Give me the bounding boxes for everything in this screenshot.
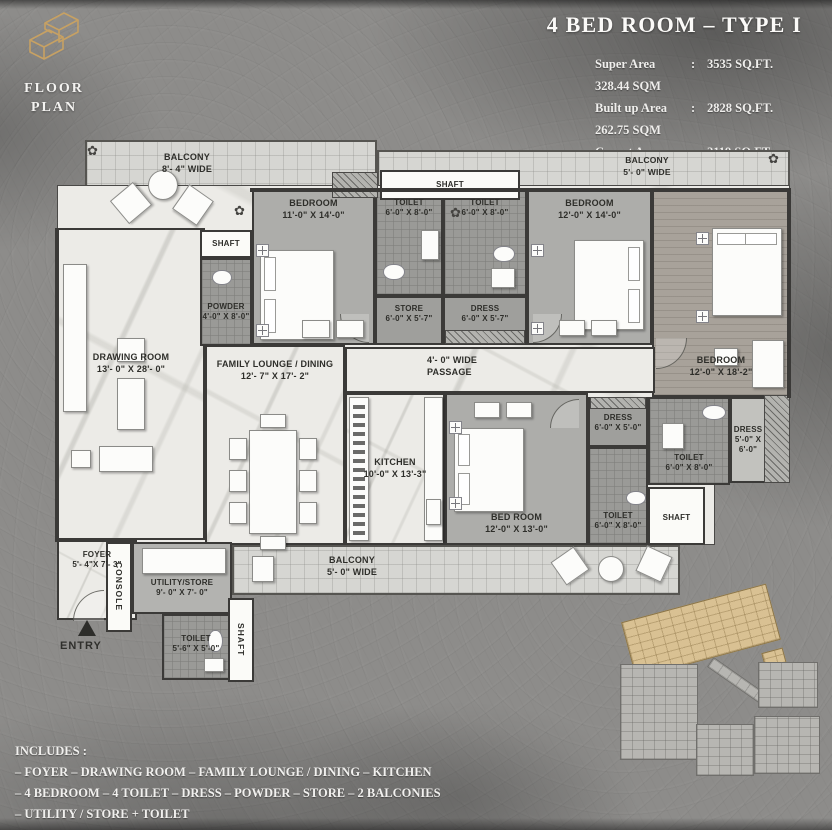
bed-symbol [454,428,524,512]
chair-symbol [336,320,364,338]
drawing-room: DRAWING ROOM 13'- 0" X 28'- 0" [57,228,205,540]
brand-block: FLOOR PLAN [12,8,96,117]
includes-line: – UTILITY / STORE + TOILET [15,804,441,825]
bedroom-1: BEDROOM 11'-0" X 14'-0" [252,190,375,345]
bedroom-2: BEDROOM 12'-0" X 14'-0" [527,190,652,345]
entry-arrow-icon [78,620,96,636]
fan-icon [449,497,462,510]
room-label: BED ROOM 12'-0" X 13'-0" [447,512,586,535]
wall-segment [55,228,58,542]
room-label: TOILET 6'-0" X 8'-0" [445,198,525,218]
hatch-strip [590,397,646,409]
bed-symbol [574,240,644,330]
includes-block: INCLUDES : – FOYER – DRAWING ROOM – FAMI… [15,741,441,825]
area-sqft: 3535 SQ.FT. [707,53,801,75]
room-label: 4'- 0" WIDE PASSAGE [427,355,505,378]
chair-symbol [474,402,500,418]
sink-symbol [426,499,441,525]
hatch-strip [445,330,525,344]
toilet-5: TOILET 5'-6" X 5'-0" [162,614,230,680]
includes-heading: INCLUDES : [15,741,441,762]
stool-symbol [71,450,91,468]
door-arc [550,399,579,428]
room-label: BEDROOM 12'-0" X 18'-2" [654,355,788,378]
fan-icon [531,244,544,257]
wc-icon [626,491,646,505]
room-label: TOILET 6'-0" X 8'-0" [590,511,646,531]
colon: : [691,97,707,119]
table-symbol [117,378,145,430]
chair-symbol [299,470,317,492]
dining-table-symbol [249,430,297,534]
wc-icon [383,264,405,280]
chair-symbol [299,438,317,460]
area-label: Super Area [595,53,691,75]
rosette-icon: ✿ [234,204,245,217]
wc-icon [212,270,232,285]
sofa-symbol [63,264,87,412]
room-label: UTILITY/STORE 9'- 0" X 7'- 0" [134,578,230,598]
room-label: BEDROOM 12'-0" X 14'-0" [529,198,650,221]
includes-line: – 4 BEDROOM – 4 TOILET – DRESS – POWDER … [15,783,441,804]
area-label: Built up Area [595,97,691,119]
sink-symbol [491,268,515,288]
bedroom-3: BEDROOM 12'-0" X 18'-2" [652,188,790,397]
logo-icon [21,8,87,70]
wc-icon [493,246,515,262]
area-sqm: 262.75 SQM [595,119,661,141]
sink-symbol [662,423,684,449]
room-label: STORE 6'-0" X 5'-7" [377,304,441,324]
key-plan-block [758,662,818,708]
sofa-symbol [99,446,153,472]
room-label: TOILET 6'-0" X 8'-0" [650,453,728,473]
powder-room: POWDER 4'-0" X 8'-0" [200,258,252,346]
utility-store: UTILITY/STORE 9'- 0" X 7'- 0" [132,542,232,614]
dress-3: DRESS 5'-0" X 6'-0" [730,397,766,483]
kitchen: KITCHEN 10'-0" X 13'-3" [345,393,445,545]
chair-symbol [229,470,247,492]
chair-symbol [302,320,330,338]
chair-symbol [260,536,286,550]
key-plan [612,592,828,788]
room-label: DRESS 5'-0" X 6'-0" [732,425,764,455]
room-label: BALCONY 5'- 0" WIDE [604,155,690,178]
room-label: DRAWING ROOM 13'- 0" X 28'- 0" [59,352,203,375]
toilet-2: TOILET 6'-0" X 8'-0" [443,190,527,296]
fan-icon [531,322,544,335]
chair-symbol [299,502,317,524]
washer-symbol [252,556,274,582]
chair-symbol [551,547,590,586]
chair-symbol [559,320,585,336]
room-label: SHAFT [236,623,246,656]
door-arc [73,590,104,621]
vanity-symbol [421,230,439,260]
area-sqm: 328.44 SQM [595,75,661,97]
sink-symbol [204,658,224,672]
rosette-icon: ✿ [768,152,779,165]
wardrobe-hatch [764,395,790,483]
page-title: 4 BED ROOM – TYPE I [547,12,802,38]
fan-icon [256,244,269,257]
balcony-bottom: BALCONY 5'- 0" WIDE [232,545,680,595]
room-label: SHAFT [650,513,703,523]
toilet-1: TOILET 6'-0" X 8'-0" [375,190,443,296]
wc-icon [702,405,726,420]
utility-bench-symbol [142,548,226,574]
chair-symbol [229,502,247,524]
shaft-top: SHAFT [380,170,520,200]
fan-icon [696,310,709,323]
floor-plan-label: FLOOR PLAN [12,79,96,117]
area-sqft: 2828 SQ.FT. [707,97,801,119]
key-plan-block [696,724,754,776]
passage: 4'- 0" WIDE PASSAGE [345,347,655,393]
room-label: SHAFT [382,180,518,190]
colon: : [691,53,707,75]
room-label: KITCHEN 10'-0" X 13'-3" [347,457,443,480]
fan-icon [696,232,709,245]
chair-symbol [591,320,617,336]
includes-line: – FOYER – DRAWING ROOM – FAMILY LOUNGE /… [15,762,441,783]
toilet-3: TOILET 6'-0" X 8'-0" [648,397,730,485]
area-row: Super Area:3535 SQ.FT.328.44 SQM [595,53,832,97]
store-room: STORE 6'-0" X 5'-7" [375,296,443,345]
chair-symbol [229,438,247,460]
chair-symbol [506,402,532,418]
bed-symbol [712,228,782,316]
key-plan-block [620,664,698,760]
family-lounge-dining: FAMILY LOUNGE / DINING 12'- 7" X 17'- 2" [205,345,345,545]
toilet-4: TOILET 6'-0" X 8'-0" [588,447,648,545]
round-table-symbol [598,556,624,582]
room-label: BALCONY 8'- 4" WIDE [127,152,247,175]
area-row: Built up Area:2828 SQ.FT.262.75 SQM [595,97,832,141]
room-label: BEDROOM 11'-0" X 14'-0" [254,198,373,221]
shaft-right: SHAFT [648,487,705,545]
chair-symbol [260,414,286,428]
room-label: DRESS 6'-0" X 5'-0" [590,413,646,433]
key-plan-block [754,716,820,774]
room-label: BALCONY 5'- 0" WIDE [300,555,404,578]
room-label: TOILET 5'-6" X 5'-0" [164,634,228,654]
room-label: FAMILY LOUNGE / DINING 12'- 7" X 17'- 2" [207,359,343,382]
room-label: DRESS 6'-0" X 5'-7" [445,304,525,324]
hatch-strip [332,172,378,198]
fan-icon [256,324,269,337]
rosette-icon: ✿ [87,144,98,157]
room-label: POWDER 4'-0" X 8'-0" [202,302,250,322]
entry-label: ENTRY [60,640,102,652]
shaft-left: SHAFT [200,230,252,258]
shaft-bottom: SHAFT [228,598,254,682]
room-label: TOILET 6'-0" X 8'-0" [377,198,441,218]
chair-symbol [635,545,672,582]
room-label: SHAFT [202,239,250,249]
room-label: CONSOLE [114,562,124,611]
floor-plan-poster: FLOOR PLAN 4 BED ROOM – TYPE I Super Are… [0,0,832,830]
bedroom-4: BED ROOM 12'-0" X 13'-0" [445,393,588,545]
wall-segment [250,188,790,192]
fan-icon [449,421,462,434]
